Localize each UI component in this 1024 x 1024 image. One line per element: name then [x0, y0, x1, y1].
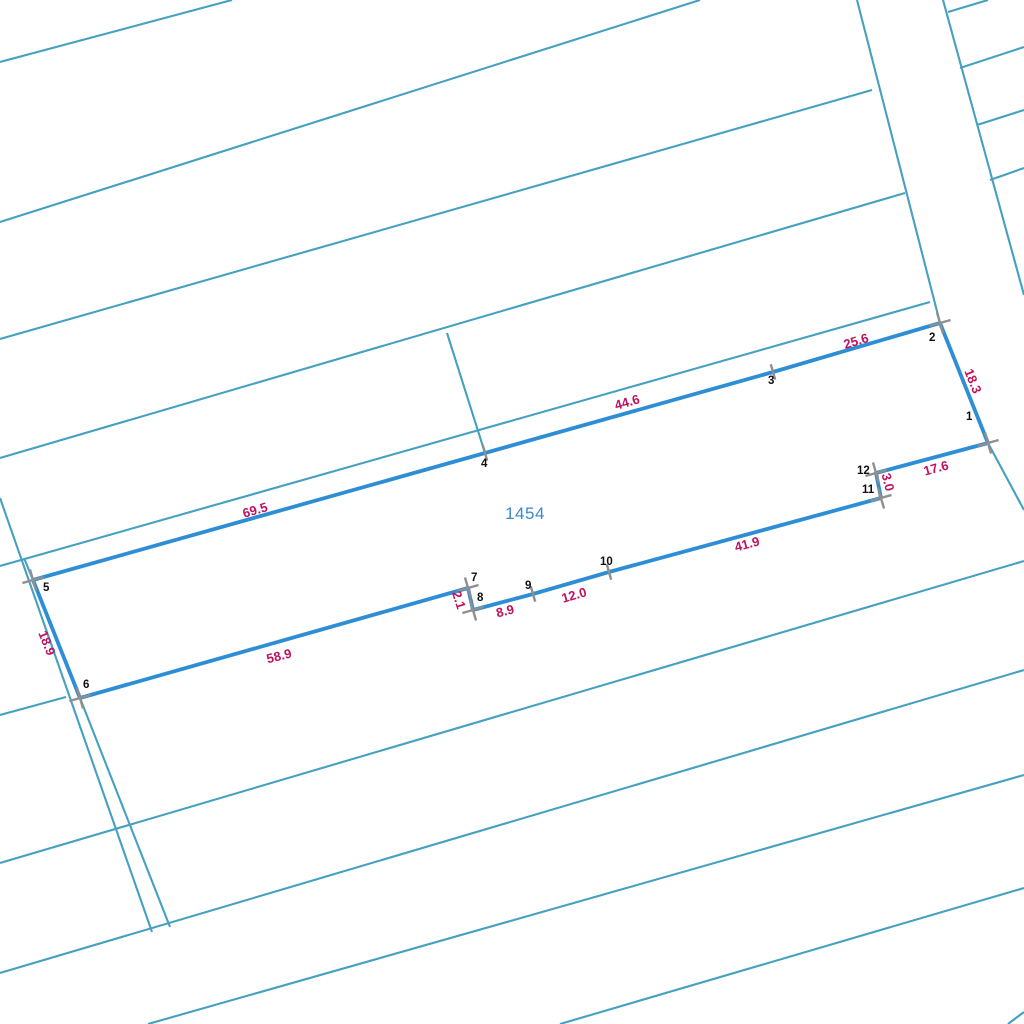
cadastral-boundary-line	[960, 47, 1024, 68]
cadastral-boundary-line	[0, 0, 232, 62]
cadastral-lines-layer	[0, 0, 1024, 1024]
cadastral-boundary-line	[948, 0, 988, 12]
cadastral-boundary-line	[857, 0, 940, 323]
cadastral-boundary-line	[80, 698, 170, 927]
cadastral-boundary-line	[1008, 1012, 1024, 1024]
cadastral-boundary-line	[990, 168, 1024, 180]
cadastral-boundary-line	[0, 697, 66, 715]
selected-parcel-boundary[interactable]	[33, 323, 988, 698]
map-viewport[interactable]: 25.618.344.617.63.041.912.08.92.158.918.…	[0, 0, 1024, 1024]
cadastral-boundary-line	[988, 443, 1024, 510]
cadastral-boundary-line	[148, 775, 1024, 1024]
cadastral-boundary-line	[0, 193, 905, 458]
cadastral-boundary-line	[0, 670, 1024, 973]
cadastral-boundary-line	[0, 90, 872, 339]
vertex-marker-1	[977, 432, 998, 453]
vertex-marker-2	[929, 312, 950, 333]
cadastral-boundary-line	[560, 888, 1024, 1024]
cadastral-boundary-line	[447, 333, 485, 453]
cadastral-boundary-line	[0, 498, 152, 932]
cadastral-boundary-line	[0, 302, 930, 566]
cadastral-boundary-line	[943, 0, 1024, 295]
cadastral-boundary-line	[977, 110, 1024, 125]
